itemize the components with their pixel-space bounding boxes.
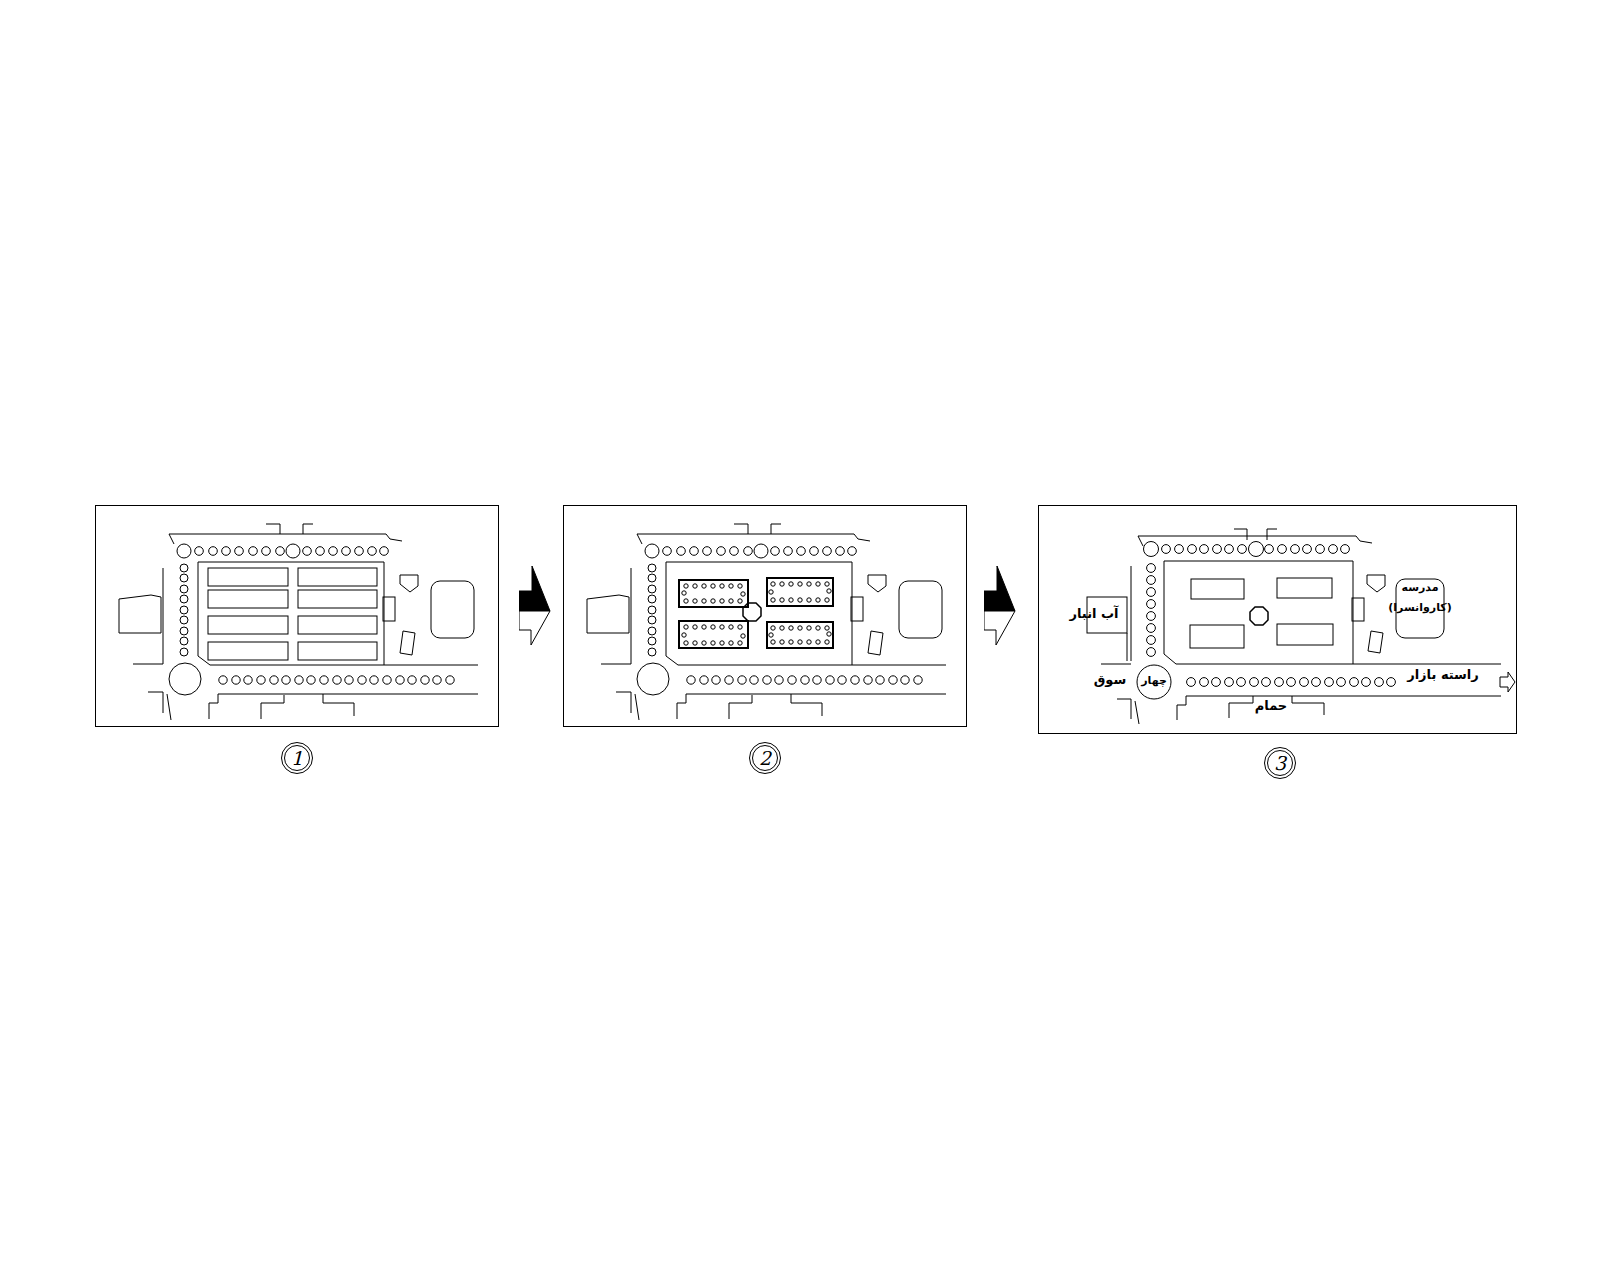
label-crossroads-chahar: چهار [1138, 675, 1170, 687]
stage-number-1: 1 [281, 742, 313, 774]
label-bathhouse: حمام [1247, 699, 1295, 713]
bazaar-direction-arrow-icon [1500, 672, 1515, 692]
shop-row-left [1147, 564, 1156, 657]
caravanserai-courts [679, 578, 833, 648]
label-bazaar-spine: راسته بازار [1387, 668, 1499, 682]
street-edges [1101, 529, 1501, 724]
stage-number-ring: 2 [752, 745, 778, 771]
stage-number-2: 2 [749, 742, 781, 774]
stage-number-text: 3 [1274, 752, 1286, 774]
shop-row-bottom [687, 676, 922, 684]
central-pool-octagon [1250, 607, 1268, 625]
junction-roundabout [169, 663, 201, 695]
bazaar-block [1164, 561, 1353, 664]
context-buildings [587, 575, 942, 655]
central-pool-octagon [743, 603, 761, 621]
site-plan-stage-2 [564, 506, 966, 726]
shop-row-top [645, 544, 856, 558]
context-buildings [119, 575, 474, 655]
label-crossroads-suq: سوق [1087, 673, 1133, 687]
shop-row-bottom [219, 676, 454, 684]
stage-number-ring: 1 [284, 745, 310, 771]
junction-roundabout [637, 663, 669, 695]
shop-row-left [180, 564, 188, 656]
stage-panel-3: آب انبار سوق چهار مدرسه (کاروانسرا) راست… [1038, 505, 1517, 734]
stage-number-text: 2 [759, 747, 771, 769]
court-cells [682, 582, 831, 645]
label-school-line1: مدرسه [1384, 582, 1456, 594]
stage-panel-1 [95, 505, 499, 727]
stage-number-text: 1 [291, 747, 303, 769]
shop-row-left [648, 564, 656, 656]
bazaar-block [198, 562, 384, 665]
site-plan-stage-1 [96, 506, 498, 726]
stage-number-3: 3 [1264, 747, 1296, 779]
shop-row-bottom [1187, 678, 1396, 687]
label-water-reservoir: آب انبار [1059, 607, 1129, 621]
shop-row-top [1144, 542, 1350, 557]
stage-panel-2 [563, 505, 967, 727]
figure-canvas: آب انبار سوق چهار مدرسه (کاروانسرا) راست… [0, 0, 1600, 1280]
stage-number-ring: 3 [1267, 750, 1293, 776]
label-school-line2: (کاروانسرا) [1379, 602, 1461, 614]
shop-row-top [177, 544, 388, 558]
transition-arrow-icon-1 [519, 566, 552, 645]
transition-arrow-icon-2 [984, 566, 1017, 645]
street-edges [133, 524, 478, 720]
